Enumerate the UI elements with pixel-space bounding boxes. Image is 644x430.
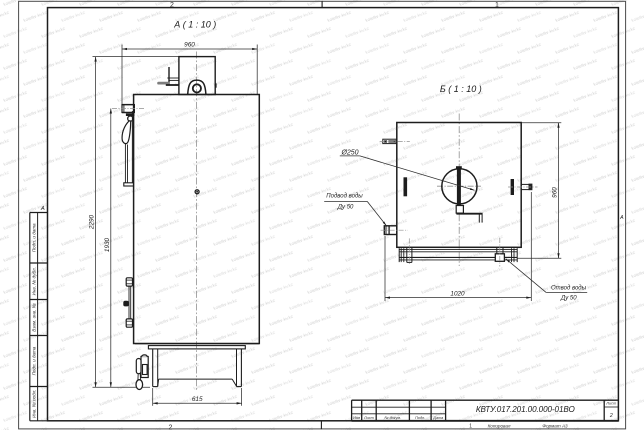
svg-text:Подп.: Подп. <box>415 416 425 420</box>
svg-text:Ø250: Ø250 <box>340 149 358 156</box>
svg-text:Лист: Лист <box>605 401 617 406</box>
svg-text:Ду 50: Ду 50 <box>560 296 577 302</box>
svg-text:Подп. и дата: Подп. и дата <box>31 223 36 252</box>
svg-text:2290: 2290 <box>89 214 96 230</box>
svg-text:Подвод воды: Подвод воды <box>326 193 363 199</box>
svg-text:Отвод воды: Отвод воды <box>551 285 587 291</box>
svg-text:Взам. инв. №: Взам. инв. № <box>31 303 36 331</box>
svg-text:2: 2 <box>170 2 174 9</box>
svg-text:Инв. № дубл.: Инв. № дубл. <box>31 267 36 295</box>
svg-text:Б ( 1 : 10 ): Б ( 1 : 10 ) <box>440 84 482 94</box>
svg-text:Ду 50: Ду 50 <box>337 205 354 211</box>
svg-text:1020: 1020 <box>450 291 465 298</box>
svg-text:КВТУ.017.201.00.000-01ВО: КВТУ.017.201.00.000-01ВО <box>476 405 576 414</box>
svg-text:2: 2 <box>169 424 173 430</box>
svg-text:Подп. и дата: Подп. и дата <box>31 346 36 375</box>
svg-text:А: А <box>619 215 624 221</box>
svg-text:1: 1 <box>495 2 499 9</box>
svg-text:1: 1 <box>469 424 472 430</box>
svg-text:Копировал: Копировал <box>488 423 511 428</box>
svg-text:№ докум.: № докум. <box>384 416 401 420</box>
svg-text:Изм: Изм <box>353 416 360 420</box>
svg-text:Лист: Лист <box>363 416 374 420</box>
svg-text:А: А <box>40 206 45 212</box>
svg-text:960: 960 <box>184 42 195 49</box>
svg-text:615: 615 <box>192 396 203 403</box>
svg-text:Формат А3: Формат А3 <box>542 423 568 428</box>
svg-text:Инв. № подл.: Инв. № подл. <box>31 389 36 418</box>
svg-text:960: 960 <box>552 187 559 198</box>
svg-text:А ( 1 : 10 ): А ( 1 : 10 ) <box>173 20 216 30</box>
svg-text:2: 2 <box>609 413 613 419</box>
svg-text:1930: 1930 <box>104 237 111 252</box>
svg-text:Дата: Дата <box>432 416 443 420</box>
